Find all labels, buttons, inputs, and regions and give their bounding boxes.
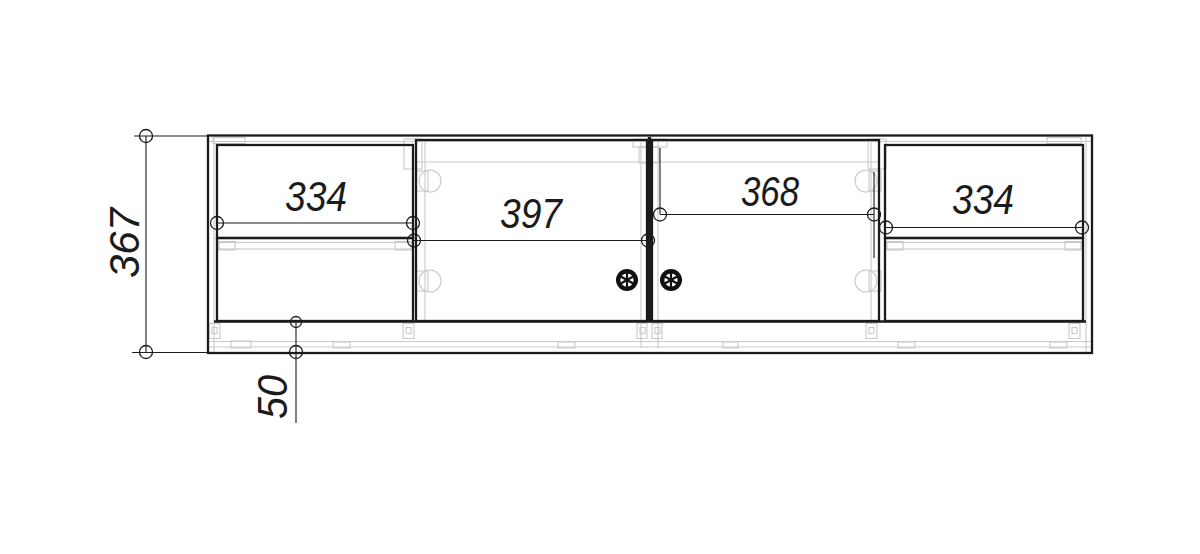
right-drawers-width-label: 334 [952,176,1014,223]
drawing-canvas: 367 334 397 368 [0,0,1200,554]
overall-height-label: 367 [101,206,148,278]
dimension-left-drawers-width: 334 [211,173,420,230]
top-bracket-icon [213,138,245,144]
door-knob-icon [660,269,682,291]
dimension-overall-height: 367 [101,130,208,359]
dimension-right-door-width: 368 [654,148,881,258]
cabinet-front-elevation: 367 334 397 368 [0,0,1200,554]
left-door-width-label: 397 [500,190,563,237]
cabinet-structure [208,136,1092,354]
right-bottom-drawer-front [885,238,1083,321]
plinth-height-label: 50 [249,374,296,419]
door-knob-icon [616,269,638,291]
hinge-icon [855,270,881,292]
hinge-icon [855,170,881,192]
left-drawers-width-label: 334 [285,173,347,220]
top-bracket-icon [1047,138,1081,144]
hinge-icon [416,170,441,192]
right-door-width-label: 368 [741,168,800,215]
dimension-left-door-width: 397 [408,190,655,247]
left-bottom-drawer-front [217,238,413,321]
dimension-annotations: 367 334 397 368 [101,130,1089,424]
dimension-plinth-height: 50 [249,317,303,424]
dimension-right-drawers-width: 334 [880,176,1089,234]
hinge-icon [416,270,441,292]
